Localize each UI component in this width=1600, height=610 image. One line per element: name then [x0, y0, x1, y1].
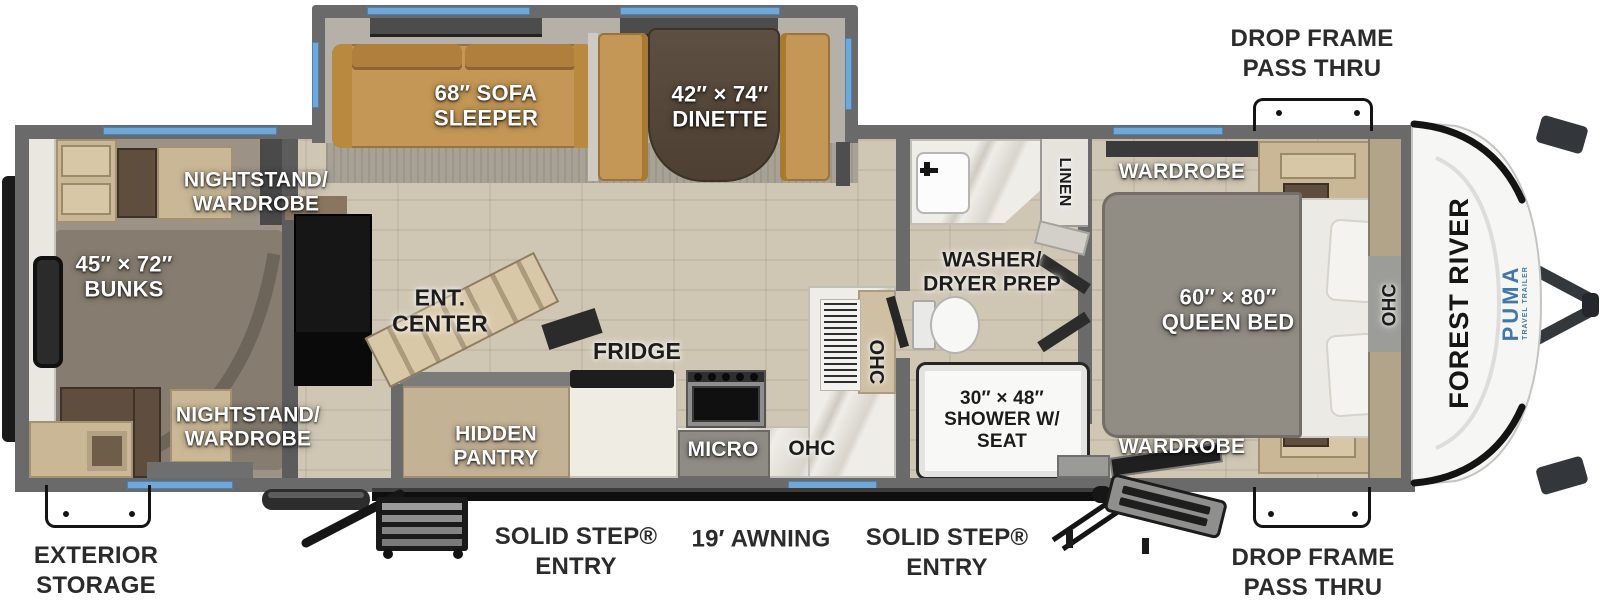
window-strip: [312, 42, 319, 108]
window-strip: [845, 38, 852, 110]
brand-model: PUMA: [1498, 265, 1523, 342]
window-strip: [620, 7, 780, 15]
wall-bath-left-top: [896, 139, 910, 291]
tv-unit: [294, 214, 372, 386]
label-wardrobe-top: WARDROBE: [1119, 160, 1245, 184]
label-awning: 19′ AWNING: [692, 527, 831, 554]
bunk-window-icon: [33, 256, 63, 368]
window-strip: [367, 7, 530, 15]
label-ohc-kitchen: OHC: [788, 437, 835, 461]
pantry-back-wall: [400, 372, 570, 386]
label-bunks: 45″ × 72″ BUNKS: [76, 252, 173, 301]
label-dinette: 42″ × 74″ DINETTE: [672, 82, 769, 131]
label-exterior-storage: EXTERIOR STORAGE: [34, 541, 158, 601]
brand-model-sub: TRAVEL TRAILER: [1522, 266, 1529, 340]
label-nightstand-top: NIGHTSTAND/ WARDROBE: [184, 168, 328, 215]
label-drop-frame-bottom: DROP FRAME PASS THRU: [1232, 543, 1395, 603]
exterior-storage-bracket: [45, 485, 151, 528]
bunk-cabinet-top: [56, 139, 117, 223]
label-hidden-pantry: HIDDEN PANTRY: [453, 422, 538, 469]
slide-topper-icon: [370, 18, 542, 34]
label-micro: MICRO: [688, 438, 759, 462]
bunk-dresser-top: [117, 148, 157, 218]
label-ohc-kitchen-wall: OHC: [865, 339, 887, 384]
window-strip: [103, 127, 277, 135]
label-ohc-bedroom: OHC: [1379, 284, 1400, 327]
floorplan-canvas: FOREST RIVER PUMA TRAVEL TRAILER 68″ SOF…: [0, 0, 1600, 610]
label-solid-step-right: SOLID STEP® ENTRY: [866, 523, 1029, 583]
label-nightstand-bottom: NIGHTSTAND/ WARDROBE: [176, 403, 320, 450]
drop-frame-bracket-top: [1253, 98, 1373, 131]
label-drop-frame-top: DROP FRAME PASS THRU: [1231, 24, 1394, 84]
dinette-divider: [588, 33, 598, 181]
bath-sink-icon: [916, 152, 970, 214]
label-washer-dryer: WASHER/ DRYER PREP: [923, 248, 1061, 295]
wall-rear: [15, 125, 29, 492]
dinette-bench: [598, 33, 648, 181]
label-shower: 30″ × 48″ SHOWER W/ SEAT: [944, 388, 1060, 452]
entry-steps-left-icon: [376, 497, 468, 559]
dinette-speaker-icon: [836, 142, 850, 186]
label-wardrobe-bottom: WARDROBE: [1119, 435, 1245, 459]
label-ent-center: ENT. CENTER: [392, 285, 488, 337]
stove-unit: [686, 370, 766, 428]
label-sofa: 68″ SOFA SLEEPER: [434, 81, 538, 130]
entry-steps-right-icon: [1053, 475, 1226, 554]
label-linen: LINEN: [1055, 158, 1073, 207]
dinette-bench: [780, 33, 830, 181]
brand-manufacturer: FOREST RIVER: [1444, 197, 1474, 409]
toilet-bowl-icon: [930, 296, 980, 354]
label-solid-step-left: SOLID STEP® ENTRY: [495, 522, 658, 582]
bedroom-tv-bar: [1106, 141, 1258, 157]
drop-frame-bracket-bottom: [1253, 487, 1371, 528]
label-queen-bed: 60″ × 80″ QUEEN BED: [1162, 285, 1295, 334]
front-cap-graphics: FOREST RIVER PUMA TRAVEL TRAILER: [1380, 100, 1600, 510]
kitchen-sink-rack-icon: [824, 303, 857, 387]
label-fridge: FRIDGE: [593, 339, 681, 365]
window-strip: [1113, 127, 1223, 135]
